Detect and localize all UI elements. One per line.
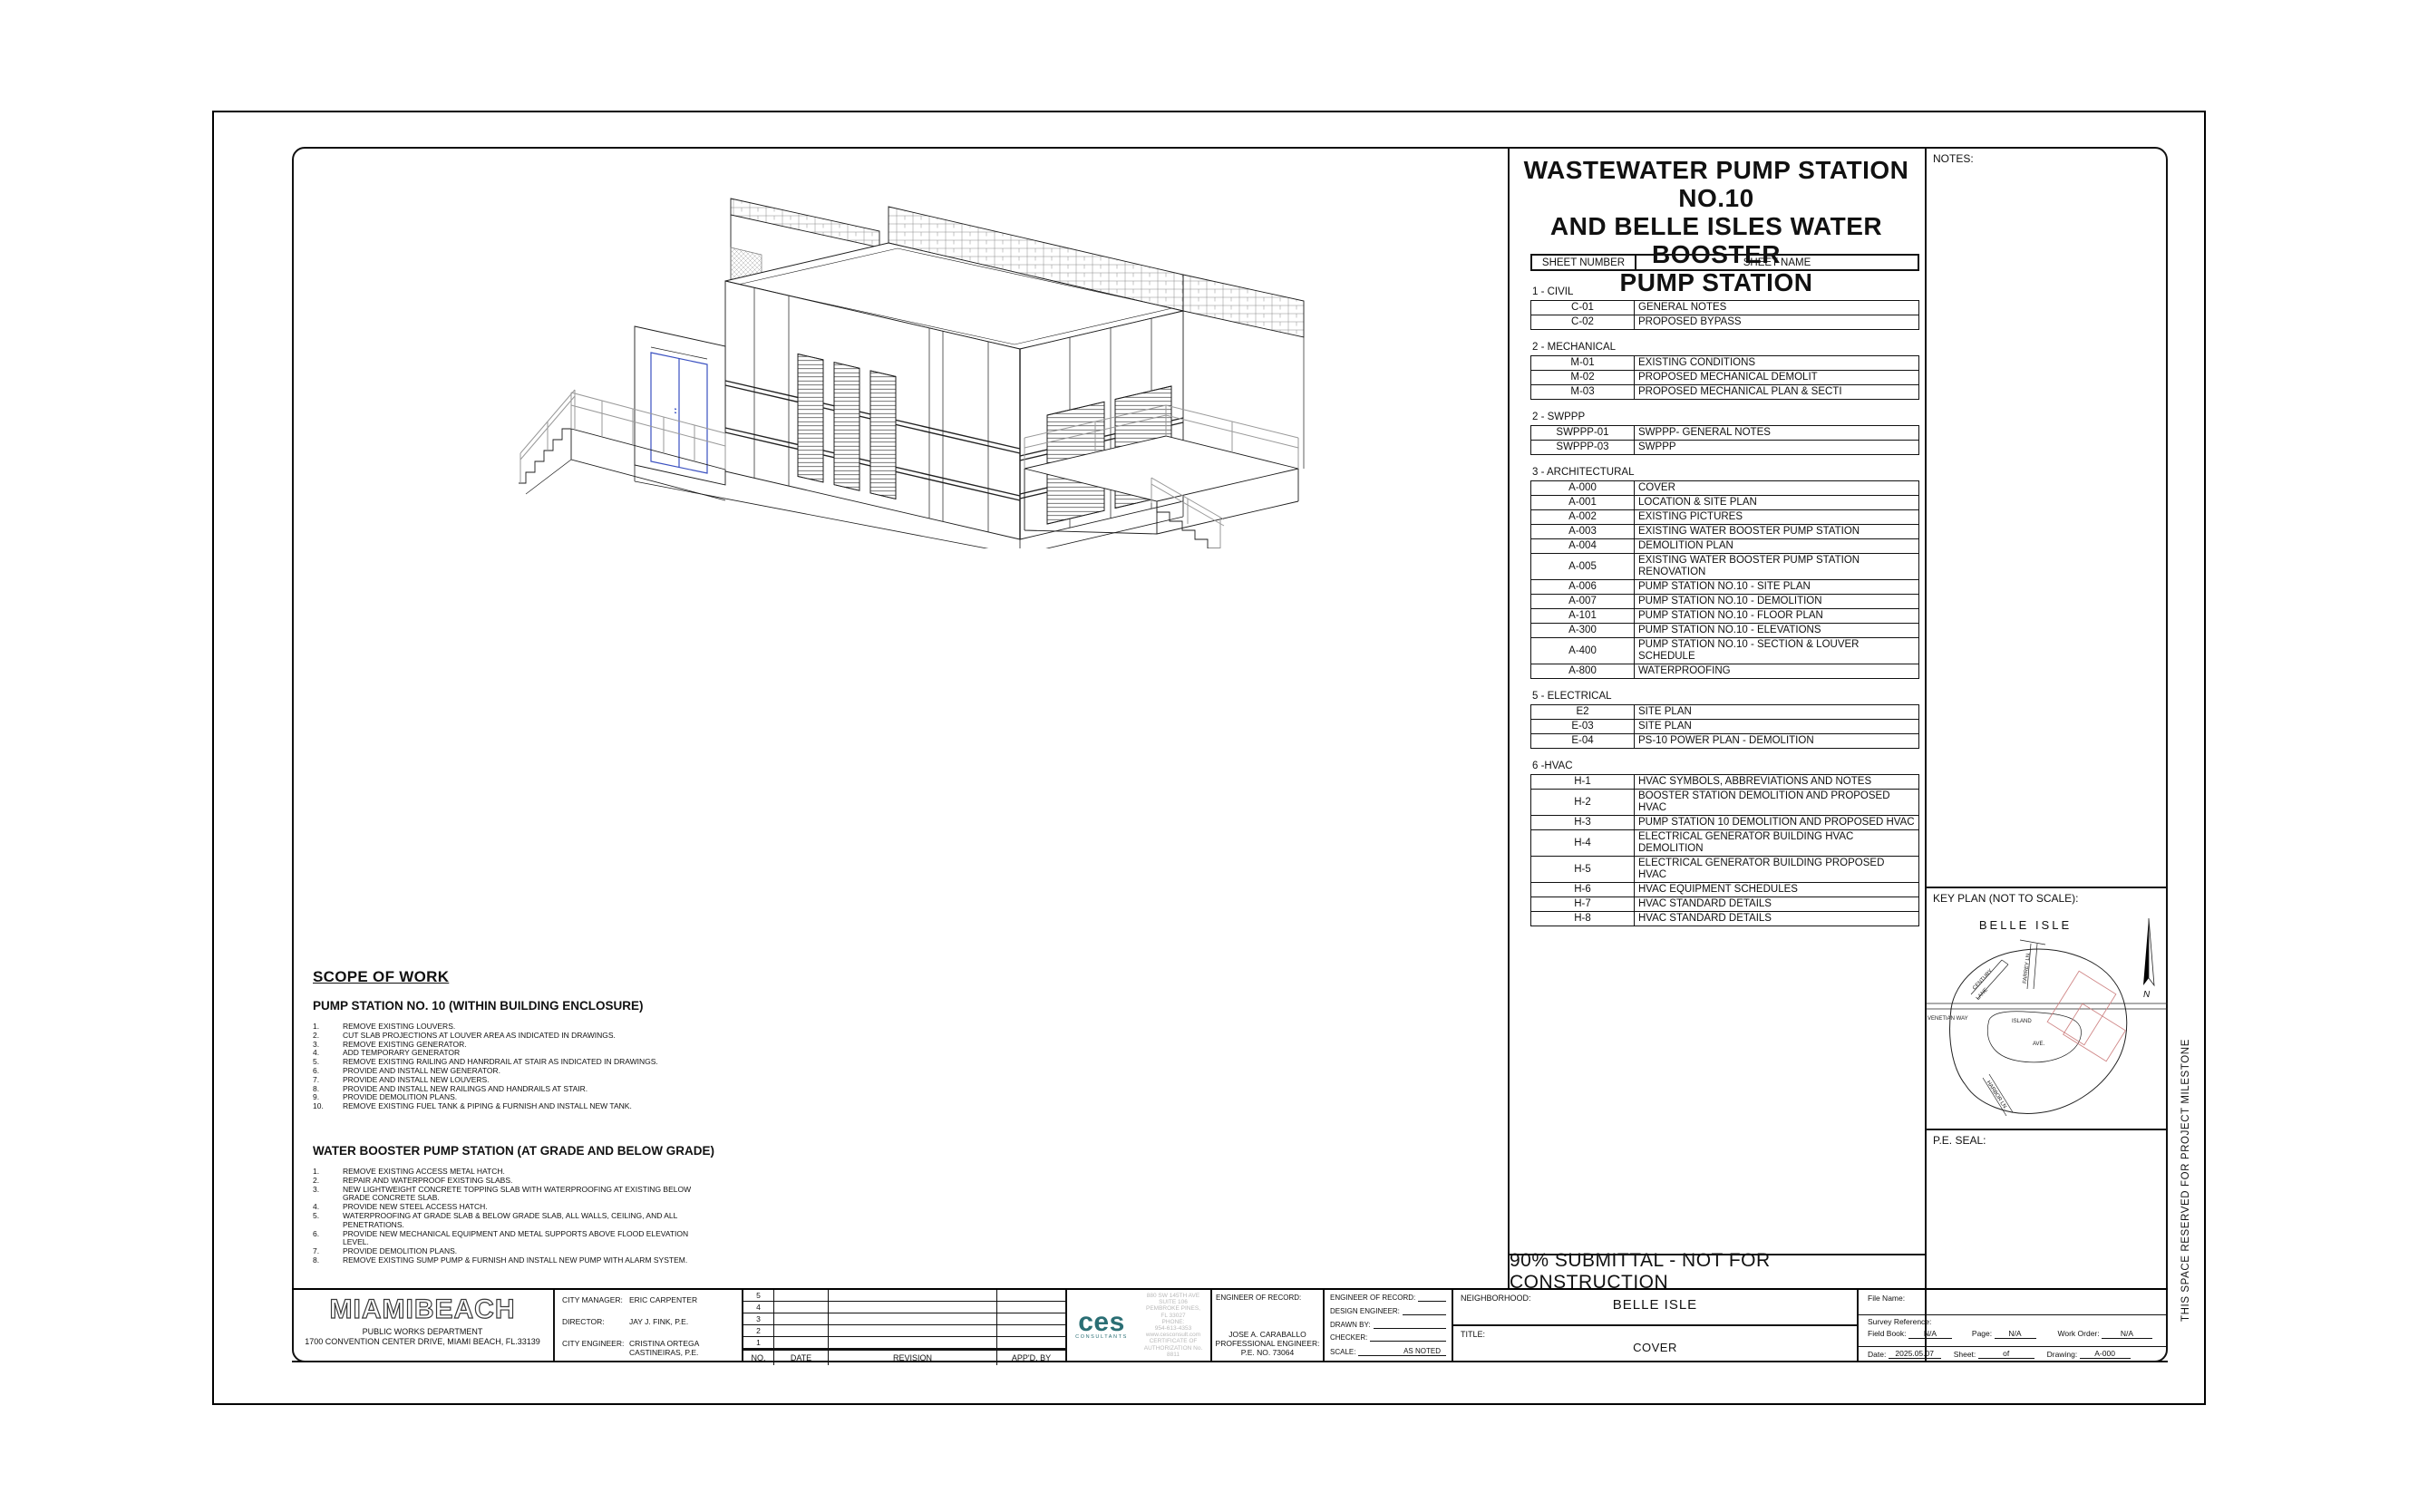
ps10-scope-list: REMOVE EXISTING LOUVERS.CUT SLAB PROJECT… [313, 1023, 694, 1111]
signoff-row: SCALE: AS NOTED [1330, 1347, 1446, 1356]
sheet-index-row: H-8 HVAC STANDARD DETAILS [1531, 912, 1919, 926]
sheet-index-row: H-4 ELECTRICAL GENERATOR BUILDING HVAC D… [1531, 830, 1919, 857]
sheet-number-cell: M-02 [1531, 371, 1635, 385]
sheet-index-row: A-800 WATERPROOFING [1531, 664, 1919, 679]
signoff-value [1370, 1341, 1446, 1342]
sheet-index-section: 2 - MECHANICAL M-01 EXISTING CONDITIONS … [1530, 342, 1919, 400]
signoff-row: ENGINEER OF RECORD: [1330, 1294, 1446, 1302]
revision-revision-header: REVISION [829, 1351, 997, 1365]
ces-logo: ces CONSULTANTS [1067, 1311, 1136, 1340]
revision-table: 5 4 3 [743, 1290, 1067, 1361]
sheet-number-cell: C-02 [1531, 315, 1635, 330]
sheet-number-cell: A-006 [1531, 580, 1635, 595]
ces-address-line: SUITE 106 [1136, 1299, 1210, 1305]
sheet-index-row: A-400 PUMP STATION NO.10 - SECTION & LOU… [1531, 638, 1919, 664]
sheet-number-cell: A-001 [1531, 496, 1635, 510]
staff-label: DIRECTOR: [562, 1318, 629, 1327]
page-label: Page: [1972, 1329, 1992, 1339]
revision-desc-cell [829, 1313, 997, 1325]
sheet-name-cell: BOOSTER STATION DEMOLITION AND PROPOSED … [1635, 790, 1919, 816]
sheet-name-cell: DEMOLITION PLAN [1635, 539, 1919, 554]
sheet-number-cell: E-04 [1531, 734, 1635, 749]
ces-address-line: CERTIFICATE OF [1136, 1338, 1210, 1344]
staff-label: CITY MANAGER: [562, 1296, 629, 1305]
sheet-name-cell: PUMP STATION NO.10 - ELEVATIONS [1635, 624, 1919, 638]
signoff-value: AS NOTED [1358, 1347, 1446, 1356]
sheet-index-rows: A-000 COVER A-001 LOCATION & SITE PLAN A… [1531, 481, 1919, 679]
sheet-index-row: C-01 GENERAL NOTES [1531, 301, 1919, 315]
work-order-value: N/A [2102, 1329, 2152, 1339]
signoff-row: CHECKER: [1330, 1333, 1446, 1342]
drawing-value: A-000 [2080, 1349, 2131, 1359]
sheet-index-row: H-3 PUMP STATION 10 DEMOLITION AND PROPO… [1531, 816, 1919, 830]
scope-item: REMOVE EXISTING FUEL TANK & PIPING & FUR… [313, 1102, 694, 1111]
sheet-number-cell: H-2 [1531, 790, 1635, 816]
sheet-index-row: E2 SITE PLAN [1531, 705, 1919, 720]
century-label: CENTURY [1972, 968, 1994, 991]
sheet-index-rows: H-1 HVAC SYMBOLS, ABBREVIATIONS AND NOTE… [1531, 775, 1919, 926]
logo-beach: BEACH [414, 1294, 516, 1324]
revision-no-header: NO. [743, 1351, 774, 1365]
island-outline [1950, 949, 2127, 1113]
sheet-index-row: A-300 PUMP STATION NO.10 - ELEVATIONS [1531, 624, 1919, 638]
sheet-index-rows: E2 SITE PLAN E-03 SITE PLAN E-04 PS-10 P… [1531, 705, 1919, 749]
sheet-number-cell: M-01 [1531, 356, 1635, 371]
file-name-label: File Name: [1868, 1294, 1905, 1303]
sheet-number-cell: H-7 [1531, 897, 1635, 912]
survey-row: Survey Reference: Field Book: N/A Page: … [1859, 1315, 2168, 1347]
eor-pe-number: P.E. NO. 73064 [1214, 1348, 1321, 1357]
submittal-stamp: 90% SUBMITTAL - NOT FOR CONSTRUCTION [1508, 1254, 1927, 1290]
signoff-row: DRAWN BY: [1330, 1321, 1446, 1329]
signoff-label: DESIGN ENGINEER: [1330, 1307, 1400, 1315]
revision-number: 4 [743, 1302, 774, 1313]
right-column-divider [1925, 148, 1927, 1362]
date-value: 2025.05.07 [1889, 1349, 1941, 1359]
sheet-number-cell: E2 [1531, 705, 1635, 720]
sheet-name-cell: HVAC STANDARD DETAILS [1635, 897, 1919, 912]
sheet-name-cell: PROPOSED MECHANICAL DEMOLIT [1635, 371, 1919, 385]
revision-number: 2 [743, 1325, 774, 1337]
sheet-name-cell: PUMP STATION NO.10 - SECTION & LOUVER SC… [1635, 638, 1919, 664]
signoff-block: ENGINEER OF RECORD: DESIGN ENGINEER: DRA… [1325, 1290, 1453, 1361]
sheet-index-row: SWPPP-03 SWPPP [1531, 441, 1919, 455]
agency-department: PUBLIC WORKS DEPARTMENT [292, 1327, 553, 1337]
sheet-number-cell: H-5 [1531, 857, 1635, 883]
sheet-index-row: A-000 COVER [1531, 481, 1919, 496]
ces-address-line: 880 SW 145TH AVE [1136, 1293, 1210, 1299]
sheet-index-row: E-04 PS-10 POWER PLAN - DEMOLITION [1531, 734, 1919, 749]
date-label: Date: [1868, 1350, 1886, 1359]
miamibeach-logo: MIAMIBEACH [292, 1294, 553, 1325]
sheet-number-cell: A-800 [1531, 664, 1635, 679]
sheet-number-cell: A-003 [1531, 525, 1635, 539]
keyplan-island-title: BELLE ISLE [1979, 918, 2072, 932]
venetian-way-label: VENETIAN WAY [1928, 1016, 1968, 1022]
signoff-label: ENGINEER OF RECORD: [1330, 1294, 1415, 1302]
eor-name: JOSE A. CARABALLO [1214, 1330, 1321, 1339]
page-value: N/A [1995, 1329, 2036, 1339]
revision-row: 3 [743, 1313, 1065, 1325]
booster-scope-list: REMOVE EXISTING ACCESS METAL HATCH.REPAI… [313, 1168, 694, 1265]
sheet-name-cell: HVAC STANDARD DETAILS [1635, 912, 1919, 926]
ces-address: 880 SW 145TH AVESUITE 106PEMBROKE PINES,… [1136, 1293, 1210, 1358]
ces-consultants-label: CONSULTANTS [1067, 1334, 1136, 1340]
revision-number: 3 [743, 1313, 774, 1325]
sheet-index-rows: C-01 GENERAL NOTES C-02 PROPOSED BYPASS [1531, 301, 1919, 330]
ces-address-line: www.cesconsult.com [1136, 1332, 1210, 1338]
revision-number: 1 [743, 1337, 774, 1349]
eor-label: ENGINEER OF RECORD: [1214, 1294, 1321, 1302]
sheet-index-row: A-002 EXISTING PICTURES [1531, 510, 1919, 525]
ces-address-line: FL 33027 [1136, 1313, 1210, 1319]
ces-address-line: AUTHORIZATION No. [1136, 1345, 1210, 1352]
sheet-index-section-label: 2 - MECHANICAL [1532, 342, 1919, 353]
venetian-way-road [1926, 1003, 2168, 1009]
sheet-name-cell: ELECTRICAL GENERATOR BUILDING PROPOSED H… [1635, 857, 1919, 883]
harbor-label: HARBOR LN. [1986, 1080, 2008, 1110]
sheet-index-row: A-004 DEMOLITION PLAN [1531, 539, 1919, 554]
revision-number: 5 [743, 1290, 774, 1302]
staff-row: DIRECTOR: JAY J. FINK, P.E. [562, 1318, 736, 1327]
sheet-number-cell: A-400 [1531, 638, 1635, 664]
scope-item: WATERPROOFING AT GRADE SLAB & BELOW GRAD… [313, 1212, 694, 1230]
sheet-index-row: A-007 PUMP STATION NO.10 - DEMOLITION [1531, 595, 1919, 609]
revision-row: 5 [743, 1290, 1065, 1302]
sheet-index-section: 3 - ARCHITECTURAL A-000 COVER A-001 LOCA… [1530, 467, 1919, 679]
survey-reference-label: Survey Reference: [1868, 1317, 2168, 1326]
ave-label: AVE. [2033, 1042, 2045, 1047]
sheet-index-row: H-2 BOOSTER STATION DEMOLITION AND PROPO… [1531, 790, 1919, 816]
revision-date-cell [774, 1313, 829, 1325]
signoff-label: SCALE: [1330, 1348, 1355, 1356]
revision-date-header: DATE [774, 1351, 829, 1365]
sheet-number-cell: A-007 [1531, 595, 1635, 609]
sheet-name-cell: EXISTING WATER BOOSTER PUMP STATION RENO… [1635, 554, 1919, 580]
keyplan-seal-divider [1926, 1129, 2168, 1130]
sheet-name-cell: LOCATION & SITE PLAN [1635, 496, 1919, 510]
sheet-number-cell: H-3 [1531, 816, 1635, 830]
ces-address-line: 954-613-4353 [1136, 1325, 1210, 1332]
sheet-index-row: A-003 EXISTING WATER BOOSTER PUMP STATIO… [1531, 525, 1919, 539]
sheet-name-cell: HVAC EQUIPMENT SCHEDULES [1635, 883, 1919, 897]
sheet-name-cell: COVER [1635, 481, 1919, 496]
sheet-index-row: A-006 PUMP STATION NO.10 - SITE PLAN [1531, 580, 1919, 595]
sheet-name-cell: SITE PLAN [1635, 705, 1919, 720]
sheet-index-row: M-01 EXISTING CONDITIONS [1531, 356, 1919, 371]
revision-header: NO. DATE REVISION APP'D. BY [743, 1349, 1065, 1364]
sheet-index-section-label: 6 -HVAC [1532, 761, 1919, 771]
sheet-index-row: H-7 HVAC STANDARD DETAILS [1531, 897, 1919, 912]
neighborhood-label: NEIGHBORHOOD: [1461, 1294, 1531, 1303]
sheet-index-row: M-03 PROPOSED MECHANICAL PLAN & SECTI [1531, 385, 1919, 400]
file-info-block: File Name: Survey Reference: Field Book:… [1859, 1290, 2168, 1361]
sheet-index-row: C-02 PROPOSED BYPASS [1531, 315, 1919, 330]
scope-item: REMOVE EXISTING SUMP PUMP & FURNISH AND … [313, 1256, 694, 1265]
ps10-scope-heading: PUMP STATION NO. 10 (WITHIN BUILDING ENC… [313, 999, 644, 1013]
revision-date-cell [774, 1337, 829, 1349]
sheet-name-cell: GENERAL NOTES [1635, 301, 1919, 315]
signoff-row: DESIGN ENGINEER: [1330, 1307, 1446, 1315]
island-label: ISLAND [2012, 1019, 2032, 1024]
sheet-index-row: M-02 PROPOSED MECHANICAL DEMOLIT [1531, 371, 1919, 385]
sheet-number-cell: H-4 [1531, 830, 1635, 857]
revision-date-cell [774, 1302, 829, 1313]
sheet-index-section: 6 -HVAC H-1 HVAC SYMBOLS, ABBREVIATIONS … [1530, 761, 1919, 926]
sheet-name-cell: HVAC SYMBOLS, ABBREVIATIONS AND NOTES [1635, 775, 1919, 790]
building-isometric-drawing [517, 159, 1306, 548]
sheet-name-cell: SITE PLAN [1635, 720, 1919, 734]
signoff-label: DRAWN BY: [1330, 1321, 1371, 1329]
north-arrow: N [2143, 918, 2154, 1000]
sheet-name-cell: EXISTING PICTURES [1635, 510, 1919, 525]
ces-address-line: PHONE: [1136, 1319, 1210, 1325]
sheet-index-header: SHEET NUMBER SHEET NAME [1530, 254, 1919, 271]
logo-miami: MIAMI [330, 1294, 414, 1324]
revision-date-cell [774, 1290, 829, 1302]
sheet-number-cell: SWPPP-03 [1531, 441, 1635, 455]
work-order-label: Work Order: [2058, 1329, 2100, 1339]
sheet-title-label: TITLE: [1461, 1330, 1485, 1339]
sheet-index-section: 5 - ELECTRICAL E2 SITE PLAN E-03 SITE PL… [1530, 691, 1919, 749]
notes-keyplan-divider [1926, 887, 2168, 888]
sheet-index-row: H-5 ELECTRICAL GENERATOR BUILDING PROPOS… [1531, 857, 1919, 883]
sheet-number-cell: H-1 [1531, 775, 1635, 790]
sheet-name-cell: SWPPP- GENERAL NOTES [1635, 426, 1919, 441]
scope-item: PROVIDE NEW MECHANICAL EQUIPMENT AND MET… [313, 1230, 694, 1248]
staff-row: CITY MANAGER: ERIC CARPENTER [562, 1296, 736, 1305]
sheet-number-cell: A-002 [1531, 510, 1635, 525]
sheet-name-header: SHEET NAME [1636, 254, 1919, 271]
date-sheet-drawing-row: Date: 2025.05.07 Sheet: of Drawing: A-00… [1859, 1347, 2168, 1361]
sheet-name-cell: ELECTRICAL GENERATOR BUILDING HVAC DEMOL… [1635, 830, 1919, 857]
ces-address-line: PEMBROKE PINES, [1136, 1305, 1210, 1312]
field-book-label: Field Book: [1868, 1329, 1907, 1339]
sheet-name-cell: PROPOSED MECHANICAL PLAN & SECTI [1635, 385, 1919, 400]
sheet-name-cell: PS-10 POWER PLAN - DEMOLITION [1635, 734, 1919, 749]
milestone-margin-note: THIS SPACE RESERVED FOR PROJECT MILESTON… [2180, 1008, 2195, 1352]
sheet-index-row: H-6 HVAC EQUIPMENT SCHEDULES [1531, 883, 1919, 897]
sheet-number-cell: H-8 [1531, 912, 1635, 926]
city-staff-block: CITY MANAGER: ERIC CARPENTER DIRECTOR: J… [555, 1290, 743, 1361]
revision-desc-cell [829, 1302, 997, 1313]
sheet-name-cell: SWPPP [1635, 441, 1919, 455]
revision-appd-header: APP'D. BY [997, 1351, 1065, 1365]
eor-title: PROFESSIONAL ENGINEER: [1214, 1339, 1321, 1348]
signoff-value [1418, 1301, 1446, 1302]
sheet-index-rows: M-01 EXISTING CONDITIONS M-02 PROPOSED M… [1531, 356, 1919, 400]
sheet-label: Sheet: [1954, 1350, 1976, 1359]
sheet-index-row: E-03 SITE PLAN [1531, 720, 1919, 734]
signoff-value [1374, 1328, 1446, 1329]
scope-of-work-heading: SCOPE OF WORK [313, 968, 449, 986]
revision-appd-cell [997, 1325, 1065, 1337]
sheet-index-section-label: 3 - ARCHITECTURAL [1532, 467, 1919, 478]
revision-appd-cell [997, 1313, 1065, 1325]
staff-row: CITY ENGINEER: CRISTINA ORTEGA CASTINEIR… [562, 1340, 736, 1357]
farrey-label: FARREY LN. [2023, 952, 2032, 984]
sheet-number-cell: A-000 [1531, 481, 1635, 496]
revision-appd-cell [997, 1290, 1065, 1302]
ces-mark: ces [1067, 1311, 1136, 1334]
revision-desc-cell [829, 1325, 997, 1337]
north-label: N [2143, 990, 2151, 1000]
sheet-index-row: SWPPP-01 SWPPP- GENERAL NOTES [1531, 426, 1919, 441]
sheet-number-cell: C-01 [1531, 301, 1635, 315]
sheet-index-section-label: 1 - CIVIL [1532, 286, 1919, 297]
sheet-name-cell: EXISTING CONDITIONS [1635, 356, 1919, 371]
sheet-name-cell: PROPOSED BYPASS [1635, 315, 1919, 330]
project-location-outline [2047, 971, 2125, 1061]
staff-value: JAY J. FINK, P.E. [629, 1318, 688, 1327]
sheet-number-header: SHEET NUMBER [1530, 254, 1636, 271]
signoff-label: CHECKER: [1330, 1333, 1367, 1342]
booster-scope-heading: WATER BOOSTER PUMP STATION (AT GRADE AND… [313, 1144, 714, 1158]
sheet-index-section: 1 - CIVIL C-01 GENERAL NOTES C-02 PROPOS… [1530, 286, 1919, 330]
sheet-of-value: of [1978, 1349, 2034, 1359]
louver-panels [798, 354, 896, 499]
sheet-number-cell: A-101 [1531, 609, 1635, 624]
century-lane-road [1971, 960, 2008, 999]
agency-block: MIAMIBEACH PUBLIC WORKS DEPARTMENT 1700 … [292, 1290, 555, 1361]
sheet-index-row: H-1 HVAC SYMBOLS, ABBREVIATIONS AND NOTE… [1531, 775, 1919, 790]
sheet-number-cell: H-6 [1531, 883, 1635, 897]
staff-value: ERIC CARPENTER [629, 1296, 697, 1305]
signoff-value [1403, 1314, 1446, 1315]
sheet-number-cell: A-004 [1531, 539, 1635, 554]
revision-date-cell [774, 1325, 829, 1337]
sheet-index-row: A-101 PUMP STATION NO.10 - FLOOR PLAN [1531, 609, 1919, 624]
sheet-number-cell: A-300 [1531, 624, 1635, 638]
title-column-divider [1508, 148, 1510, 1290]
staff-value: CRISTINA ORTEGA CASTINEIRAS, P.E. [629, 1340, 736, 1357]
revision-row: 1 [743, 1337, 1065, 1349]
title-block: MIAMIBEACH PUBLIC WORKS DEPARTMENT 1700 … [292, 1288, 2168, 1362]
sheet-index-section-label: 5 - ELECTRICAL [1532, 691, 1919, 702]
scope-item: NEW LIGHTWEIGHT CONCRETE TOPPING SLAB WI… [313, 1186, 694, 1204]
sheet-name-cell: EXISTING WATER BOOSTER PUMP STATION [1635, 525, 1919, 539]
file-name-row: File Name: [1859, 1290, 2168, 1315]
sheet-number-cell: E-03 [1531, 720, 1635, 734]
sheet-index-section-label: 2 - SWPPP [1532, 412, 1919, 422]
neighborhood-title-block: NEIGHBORHOOD: BELLE ISLE TITLE: COVER [1453, 1290, 1859, 1361]
revision-desc-cell [829, 1337, 997, 1349]
sheet-index: 1 - CIVIL C-01 GENERAL NOTES C-02 PROPOS… [1530, 275, 1919, 926]
sheet-index-section: 2 - SWPPP SWPPP-01 SWPPP- GENERAL NOTES … [1530, 412, 1919, 455]
agency-address: 1700 CONVENTION CENTER DRIVE, MIAMI BEAC… [292, 1337, 553, 1347]
drawing-label: Drawing: [2047, 1350, 2078, 1359]
engineer-of-record-block: ENGINEER OF RECORD: JOSE A. CARABALLO PR… [1212, 1290, 1325, 1361]
revision-appd-cell [997, 1302, 1065, 1313]
notes-label: NOTES: [1933, 152, 1974, 165]
field-book-value: N/A [1908, 1329, 1952, 1339]
key-plan-map: BELLE ISLE VENETIAN WAY ISLAND AVE. CENT… [1926, 902, 2168, 1124]
sheet-number-cell: M-03 [1531, 385, 1635, 400]
pe-seal-label: P.E. SEAL: [1933, 1134, 1986, 1147]
ces-address-line: 8811 [1136, 1352, 1210, 1358]
sheet-index-rows: SWPPP-01 SWPPP- GENERAL NOTES SWPPP-03 S… [1531, 426, 1919, 455]
revision-row: 2 [743, 1325, 1065, 1337]
sheet-name-cell: PUMP STATION 10 DEMOLITION AND PROPOSED … [1635, 816, 1919, 830]
sheet-name-cell: PUMP STATION NO.10 - FLOOR PLAN [1635, 609, 1919, 624]
revision-appd-cell [997, 1337, 1065, 1349]
sheet-index-row: A-001 LOCATION & SITE PLAN [1531, 496, 1919, 510]
project-title-line1: WASTEWATER PUMP STATION NO.10 [1512, 156, 1920, 212]
revision-row: 4 [743, 1302, 1065, 1313]
sheet-title-value: COVER [1453, 1341, 1857, 1354]
consultant-block: ces CONSULTANTS 880 SW 145TH AVESUITE 10… [1067, 1290, 1212, 1361]
sheet-number-cell: SWPPP-01 [1531, 426, 1635, 441]
sheet-name-cell: WATERPROOFING [1635, 664, 1919, 679]
sheet-name-cell: PUMP STATION NO.10 - SITE PLAN [1635, 580, 1919, 595]
revision-desc-cell [829, 1290, 997, 1302]
sheet-number-cell: A-005 [1531, 554, 1635, 580]
staff-label: CITY ENGINEER: [562, 1340, 629, 1357]
sheet-name-cell: PUMP STATION NO.10 - DEMOLITION [1635, 595, 1919, 609]
sheet-index-row: A-005 EXISTING WATER BOOSTER PUMP STATIO… [1531, 554, 1919, 580]
